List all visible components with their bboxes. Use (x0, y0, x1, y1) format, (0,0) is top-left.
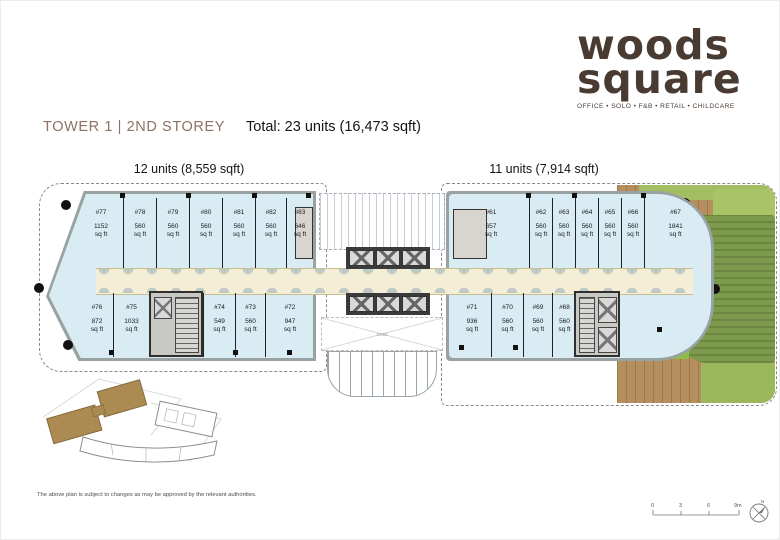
unit-cell-64: #64 560sq ft (575, 198, 598, 268)
unit-area: 947sq ft (284, 318, 296, 334)
lift-icon (402, 296, 427, 312)
unit-number: #69 (533, 304, 544, 311)
area-value: 560 (135, 223, 146, 230)
facade-column (459, 345, 464, 350)
unit-number: #62 (536, 209, 547, 216)
unit-area: 549sq ft (213, 318, 225, 334)
sqft-label: sq ft (535, 231, 547, 238)
site-key-plan (31, 375, 241, 465)
unit-cell-68: #68 560sq ft (552, 293, 576, 357)
sqft-label: sq ft (501, 326, 513, 333)
logo-tagline: OFFICE • SOLO • F&B • RETAIL • CHILDCARE (577, 103, 757, 110)
unit-cell-63: #63 560sq ft (552, 198, 575, 268)
sqft-label: sq ft (265, 231, 277, 238)
facade-column (657, 327, 662, 332)
facade-column (572, 193, 577, 198)
tower1-highlight (43, 380, 150, 444)
unit-cell-81: #81 560sq ft (222, 198, 255, 268)
unit-number: #66 (628, 209, 639, 216)
area-value: 657 (486, 223, 497, 230)
unit-cell-73: #73 560sq ft (235, 293, 265, 357)
area-value: 560 (201, 223, 212, 230)
unit-area: 657sq ft (485, 223, 497, 239)
sqft-label: sq ft (466, 326, 478, 333)
unit-number: #78 (135, 209, 146, 216)
unit-number: #79 (168, 209, 179, 216)
sqft-label: sq ft (627, 231, 639, 238)
unit-number: #65 (605, 209, 616, 216)
shaft-icon (598, 297, 617, 323)
scale-tick-2: 6 (707, 503, 710, 509)
area-value: 560 (266, 223, 277, 230)
logo-word-2: square (577, 63, 757, 97)
facade-column (252, 193, 257, 198)
facade-column (641, 193, 646, 198)
scale-tick-3: 9m (734, 503, 742, 509)
unit-number: #72 (285, 304, 296, 311)
sqft-label: sq ft (604, 231, 616, 238)
area-value: 1841 (668, 223, 682, 230)
scale-tick-0: 0 (651, 503, 654, 509)
unit-cell-69: #69 560sq ft (523, 293, 552, 357)
lift-icon (376, 250, 401, 266)
unit-area: 560sq ft (200, 223, 212, 239)
area-value: 646 (295, 223, 306, 230)
sqft-label: sq ft (558, 326, 570, 333)
area-value: 560 (168, 223, 179, 230)
shaft-icon (598, 327, 617, 353)
page-title: TOWER 1 | 2ND STOREY (43, 119, 225, 135)
unit-area: 560sq ft (558, 223, 570, 239)
scale-tick-1: 3 (679, 503, 682, 509)
scale-and-compass: 0 3 6 9m N (647, 497, 775, 531)
unit-area: 560sq ft (535, 223, 547, 239)
unit-cell-66: #66 560sq ft (621, 198, 644, 268)
unit-cell-78: #78 560sq ft (123, 198, 156, 268)
sqft-label: sq ft (213, 326, 225, 333)
unit-area: 1152sq ft (94, 223, 108, 239)
sqft-label: sq ft (581, 231, 593, 238)
area-value: 872 (92, 318, 103, 325)
unit-area: 872sq ft (91, 318, 103, 334)
unit-cell-75: #75 1033sq ft (113, 293, 149, 357)
building-outline-right (155, 401, 217, 437)
sqft-label: sq ft (532, 326, 544, 333)
area-value: 560 (559, 223, 570, 230)
left-service-core (149, 291, 203, 357)
unit-cell-77: #77 1152sq ft (79, 198, 123, 268)
sqft-label: sq ft (284, 326, 296, 333)
unit-area: 560sq ft (244, 318, 256, 334)
unit-number: #76 (92, 304, 103, 311)
unit-area: 560sq ft (233, 223, 245, 239)
sqft-label: sq ft (134, 231, 146, 238)
facade-column (120, 193, 125, 198)
area-value: 560 (582, 223, 593, 230)
unit-cell-67: #67 1841sq ft (644, 198, 706, 268)
unit-cell-79: #79 560sq ft (156, 198, 189, 268)
lift-icon (376, 296, 401, 312)
unit-cell-82: #82 560sq ft (255, 198, 286, 268)
sqft-label: sq ft (200, 231, 212, 238)
sqft-label: sq ft (244, 326, 256, 333)
unit-cell-83: #83 646sq ft (286, 198, 313, 268)
unit-area: 560sq ft (532, 318, 544, 334)
unit-area: 560sq ft (627, 223, 639, 239)
stair-icon (579, 297, 595, 353)
unit-number: #73 (245, 304, 256, 311)
unit-number: #83 (295, 209, 306, 216)
area-value: 560 (536, 223, 547, 230)
sqft-label: sq ft (95, 231, 107, 238)
unit-number: #71 (467, 304, 478, 311)
unit-cell-72: #72 947sq ft (265, 293, 314, 357)
area-value: 560 (245, 318, 256, 325)
unit-number: #74 (214, 304, 225, 311)
unit-cell-62: #62 560sq ft (529, 198, 552, 268)
area-value: 936 (467, 318, 478, 325)
grass-patch-bottom (701, 363, 775, 403)
sqft-label: sq ft (125, 326, 137, 333)
area-value: 549 (214, 318, 225, 325)
right-service-core (574, 291, 620, 357)
floorplan-page: woods square OFFICE • SOLO • F&B • RETAI… (0, 0, 780, 540)
unit-number: #75 (126, 304, 137, 311)
area-value: 560 (605, 223, 616, 230)
sqft-label: sq ft (167, 231, 179, 238)
unit-number: #63 (559, 209, 570, 216)
facade-column (526, 193, 531, 198)
void-area: VOID (321, 317, 443, 351)
brand-logo: woods square OFFICE • SOLO • F&B • RETAI… (577, 29, 757, 110)
area-value: 947 (285, 318, 296, 325)
compass-north-label: N (761, 499, 764, 504)
void-label: VOID (376, 332, 387, 337)
area-value: 1033 (124, 318, 138, 325)
unit-number: #77 (96, 209, 107, 216)
right-wing-label: 11 units (7,914 sqft) (449, 162, 639, 176)
lift-bank-bottom (346, 293, 430, 315)
unit-area: 560sq ft (134, 223, 146, 239)
canopy-ribs (327, 351, 437, 397)
sqft-label: sq ft (669, 231, 681, 238)
unit-area: 1841sq ft (668, 223, 682, 239)
facade-column (109, 350, 114, 355)
area-value: 560 (234, 223, 245, 230)
sqft-label: sq ft (558, 231, 570, 238)
area-value: 560 (628, 223, 639, 230)
door-arcs-top (96, 269, 693, 275)
unit-number: #82 (266, 209, 277, 216)
column-dot (63, 340, 73, 350)
sqft-label: sq ft (485, 231, 497, 238)
unit-number: #61 (486, 209, 497, 216)
facade-column (513, 345, 518, 350)
lift-bank-top (346, 247, 430, 269)
unit-number: #70 (502, 304, 513, 311)
unit-cell-61: #61 657sq ft (453, 198, 529, 268)
total-units-label: Total: 23 units (16,473 sqft) (246, 119, 421, 135)
unit-area: 936sq ft (466, 318, 478, 334)
sqft-label: sq ft (294, 231, 306, 238)
unit-cell-74: #74 549sq ft (203, 293, 235, 357)
unit-number: #64 (582, 209, 593, 216)
roof-louver (319, 193, 445, 250)
left-wing-label: 12 units (8,559 sqft) (94, 162, 284, 176)
unit-cell-65: #65 560sq ft (598, 198, 621, 268)
compass-icon: N (750, 499, 768, 522)
unit-area: 560sq ft (581, 223, 593, 239)
unit-area: 1033sq ft (124, 318, 138, 334)
sqft-label: sq ft (91, 326, 103, 333)
unit-cell-76: #76 872sq ft (81, 293, 113, 357)
unit-area: 560sq ft (501, 318, 513, 334)
unit-cell-80: #80 560sq ft (189, 198, 222, 268)
area-value: 560 (533, 318, 544, 325)
unit-number: #67 (670, 209, 681, 216)
unit-area: 560sq ft (167, 223, 179, 239)
building-outline-curved (80, 437, 217, 462)
column-dot (34, 283, 44, 293)
facade-column (233, 350, 238, 355)
stair-icon (175, 297, 199, 353)
unit-number: #68 (559, 304, 570, 311)
sqft-label: sq ft (233, 231, 245, 238)
unit-area: 646sq ft (294, 223, 306, 239)
unit-area: 560sq ft (604, 223, 616, 239)
column-dot (61, 200, 71, 210)
facade-column (186, 193, 191, 198)
lift-icon (349, 296, 374, 312)
unit-area: 560sq ft (558, 318, 570, 334)
lift-icon (349, 250, 374, 266)
facade-column (287, 350, 292, 355)
unit-area: 560sq ft (265, 223, 277, 239)
unit-cell-70: #70 560sq ft (491, 293, 523, 357)
unit-number: #80 (201, 209, 212, 216)
disclaimer-text: The above plan is subject to changes as … (37, 492, 256, 498)
area-value: 560 (502, 318, 513, 325)
lift-icon (402, 250, 427, 266)
unit-number: #81 (234, 209, 245, 216)
area-value: 560 (559, 318, 570, 325)
facade-column (306, 193, 311, 198)
shaft-icon (154, 297, 172, 319)
area-value: 1152 (94, 223, 108, 230)
